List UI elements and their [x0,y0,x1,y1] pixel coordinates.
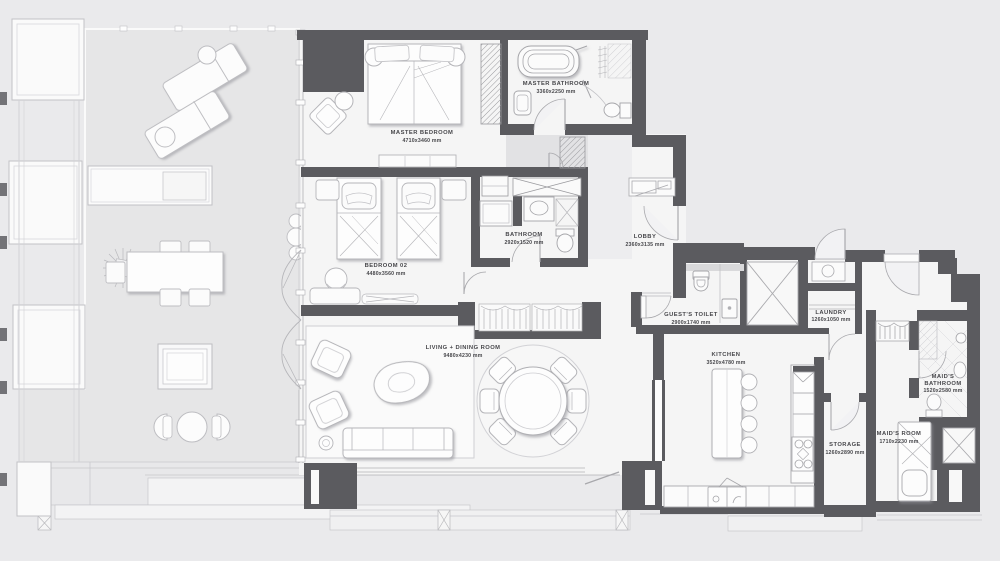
svg-text:1710x2230 mm: 1710x2230 mm [879,439,918,445]
svg-text:KITCHEN: KITCHEN [712,352,741,358]
svg-text:3360x2250 mm: 3360x2250 mm [536,89,575,95]
svg-text:2920x1520 mm: 2920x1520 mm [504,240,543,246]
svg-text:LOBBY: LOBBY [634,234,657,240]
svg-text:2360x3135 mm: 2360x3135 mm [625,242,664,248]
svg-text:MASTER BATHROOM: MASTER BATHROOM [523,81,590,87]
svg-text:MASTER BEDROOM: MASTER BEDROOM [391,130,454,136]
svg-text:3520x4780 mm: 3520x4780 mm [706,360,745,366]
svg-text:GUEST'S TOILET: GUEST'S TOILET [664,312,718,318]
svg-text:2900x1740 mm: 2900x1740 mm [671,320,710,326]
svg-text:MAID'S: MAID'S [932,374,955,380]
svg-text:MAID'S ROOM: MAID'S ROOM [877,431,922,437]
svg-text:1260x2890 mm: 1260x2890 mm [825,450,864,456]
svg-text:4480x3560 mm: 4480x3560 mm [366,271,405,277]
svg-text:LAUNDRY: LAUNDRY [815,310,846,316]
svg-text:BATHROOM: BATHROOM [924,381,961,387]
svg-text:BATHROOM: BATHROOM [505,232,542,238]
svg-text:4710x3460 mm: 4710x3460 mm [402,138,441,144]
svg-text:STORAGE: STORAGE [829,442,861,448]
svg-text:9480x4230 mm: 9480x4230 mm [443,353,482,359]
svg-text:LIVING + DINING ROOM: LIVING + DINING ROOM [426,345,501,351]
svg-text:1520x2580 mm: 1520x2580 mm [923,388,962,394]
svg-text:BEDROOM 02: BEDROOM 02 [365,263,408,269]
svg-text:1260x1050 mm: 1260x1050 mm [811,317,850,323]
